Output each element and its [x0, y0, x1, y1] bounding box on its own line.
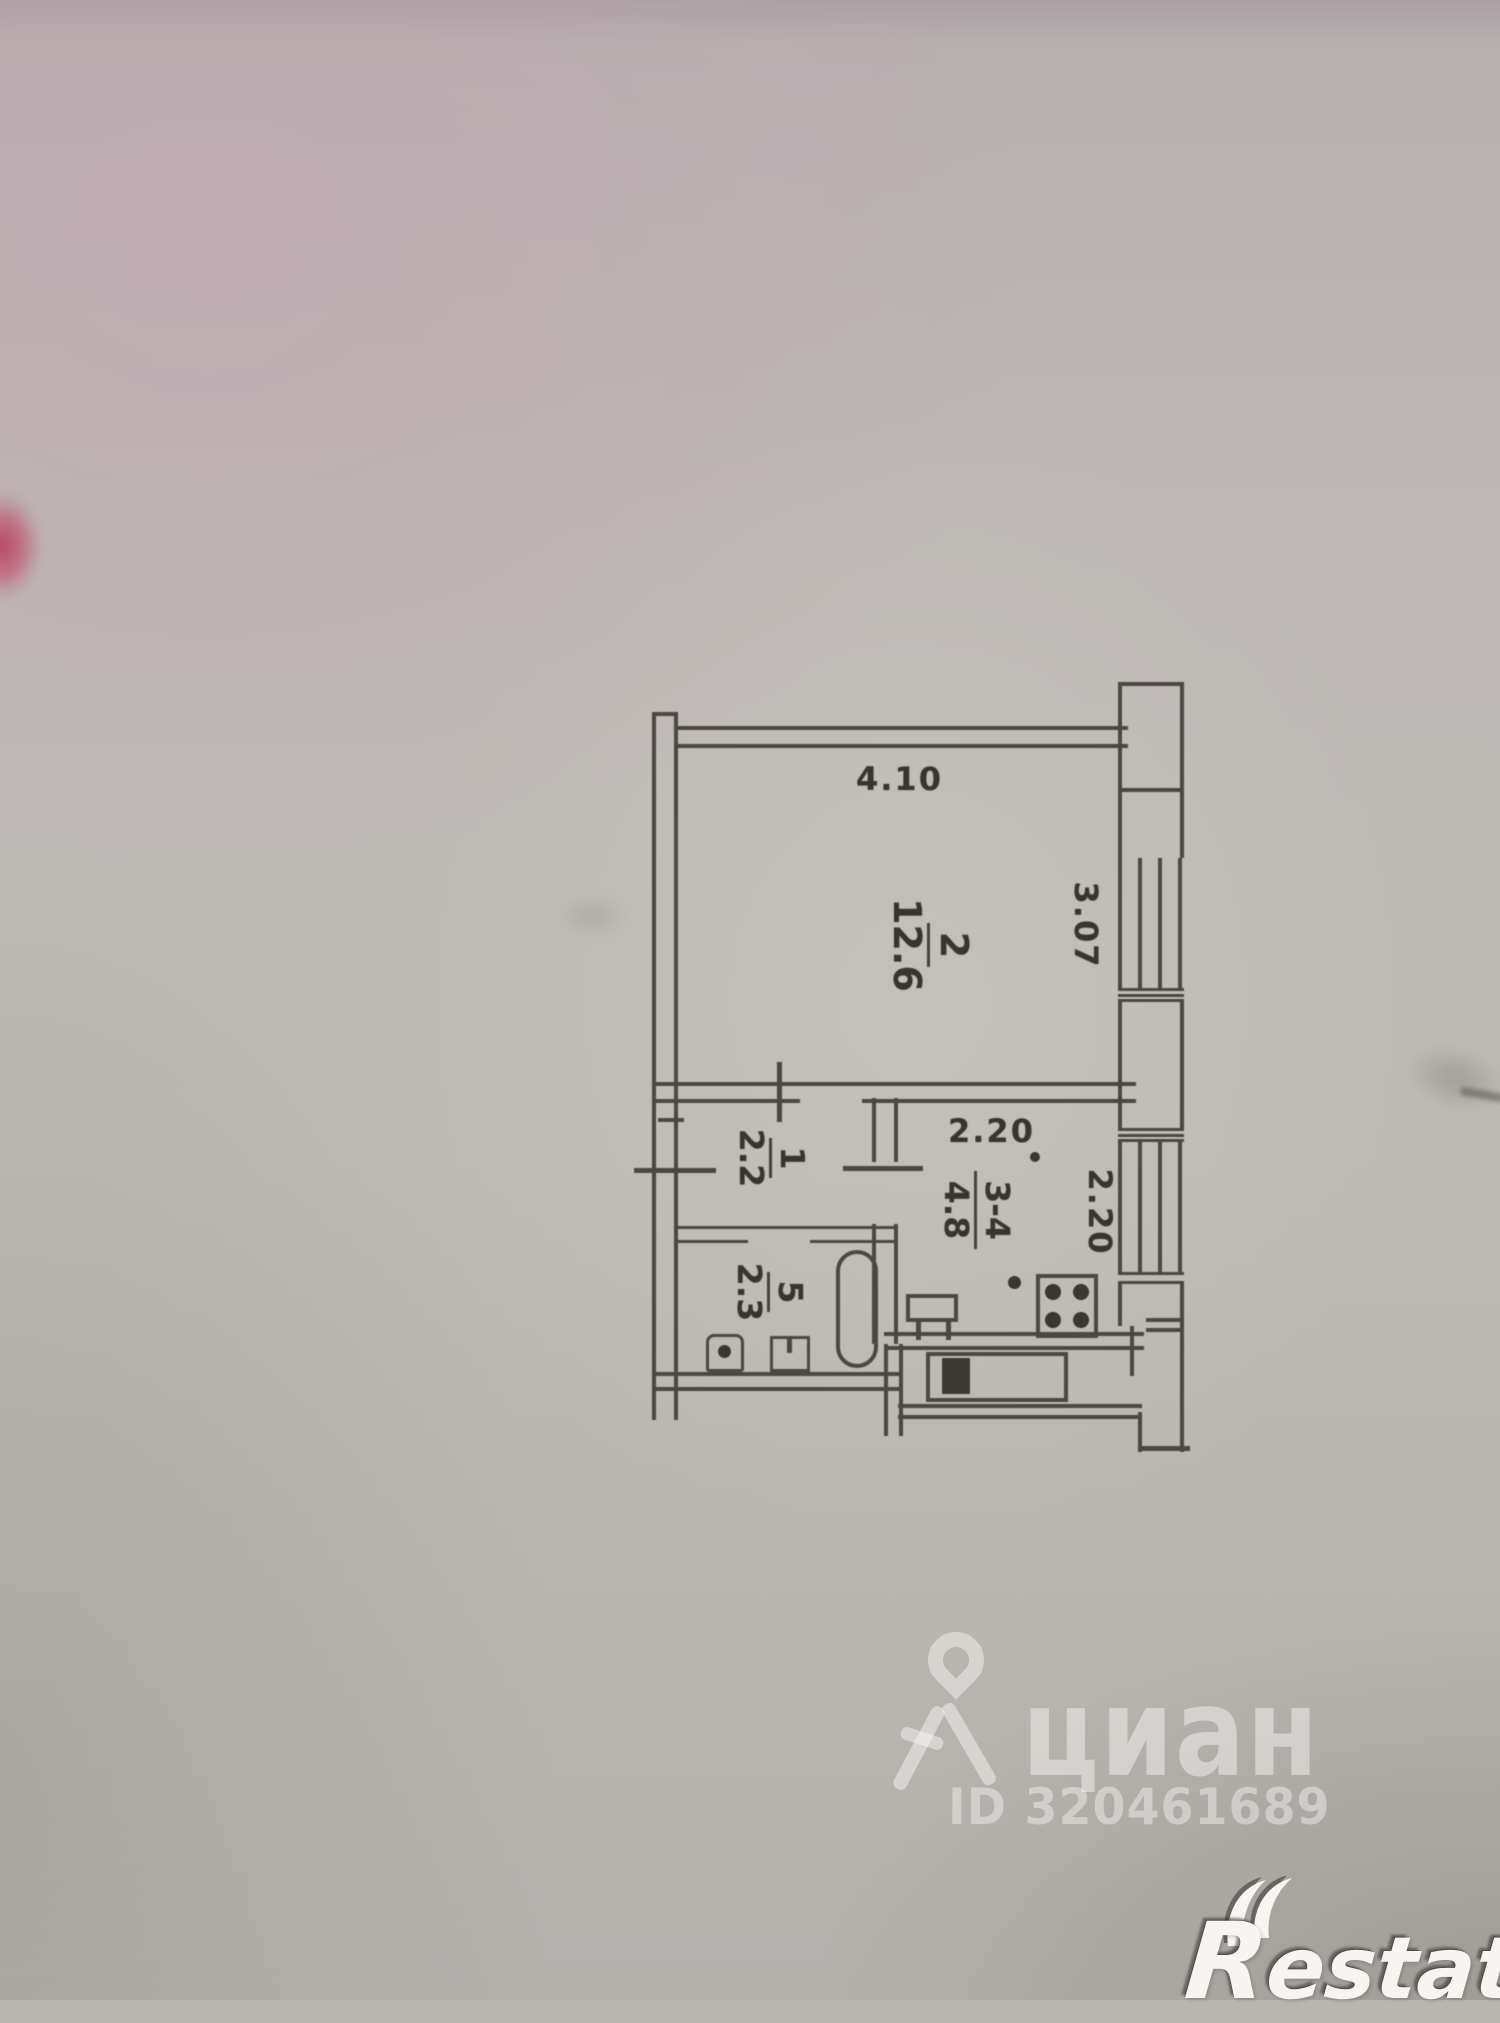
wall-right-strip — [1118, 682, 1184, 1452]
wall-top — [676, 726, 1128, 748]
wall-right-outer-lower — [1118, 1326, 1184, 1452]
restate-logo-initial: R — [1181, 1900, 1273, 2023]
stairs-hatch-symbol — [926, 1352, 1068, 1402]
restate-logo-text: Restate — [1181, 1900, 1500, 2023]
room-bathroom-number: 5 — [768, 1272, 809, 1313]
wall-hall-kitchen-upper — [872, 1098, 898, 1162]
restate-watermark: Restate — [1186, 1872, 1500, 2002]
wall-hall-bath-right — [810, 1226, 898, 1243]
dimension-tick-left — [634, 1168, 716, 1173]
wall-left — [652, 726, 678, 1420]
wall-kitchen-bottom — [884, 1332, 1144, 1350]
cian-watermark: циан ID 320461689 — [870, 1620, 1390, 1900]
room-hallway-number: 1 — [770, 1138, 811, 1179]
room-living-label: 2 12.6 — [870, 865, 990, 1025]
window-upper — [1118, 858, 1184, 988]
room-hallway-area: 2.2 — [734, 1129, 770, 1187]
room-kitchen-label: 3-4 4.8 — [925, 1130, 1029, 1290]
wall-living-divider-right — [862, 1082, 1136, 1103]
dimension-top-label: 4.10 — [856, 760, 943, 798]
cian-listing-id: ID 320461689 — [948, 1778, 1330, 1836]
dimension-tick-small — [658, 1118, 684, 1122]
cian-pin-icon — [900, 1620, 1030, 1790]
room-kitchen-number: 3-4 — [975, 1171, 1016, 1249]
wall-right-blank-2 — [1118, 1002, 1184, 1128]
window-sill-1 — [1118, 988, 1184, 1002]
wall-stair-left — [884, 1344, 903, 1436]
room-bathroom-area: 2.3 — [732, 1263, 768, 1321]
dimension-right-label: 3.07 — [1056, 845, 1116, 1005]
wall-right-blank-1 — [1118, 792, 1184, 858]
restate-logo-suffix: estate — [1263, 1919, 1500, 2019]
room-bathroom-label: 5 2.3 — [718, 1212, 822, 1372]
shaft-block — [1118, 682, 1184, 792]
cian-pin-leg-right — [940, 1701, 998, 1788]
cian-pin-head — [916, 1620, 995, 1699]
kitchen-sink-symbol — [906, 1294, 958, 1322]
room-living-area: 12.6 — [886, 898, 927, 992]
dimension-tick-mid — [843, 1166, 923, 1171]
dimension-right-value: 3.07 — [1069, 882, 1104, 969]
wall-stair-bottom — [898, 1404, 1142, 1419]
kitchen-dimension-right-value: 2.20 — [1083, 1169, 1118, 1256]
bathtub-symbol — [836, 1250, 878, 1368]
wall-right-inner-stub — [1130, 1326, 1134, 1376]
kitchen-sink-leg-left — [916, 1322, 921, 1340]
wall-bath-bottom — [652, 1372, 902, 1391]
room-kitchen-area: 4.8 — [939, 1181, 975, 1239]
kitchen-sink-leg-right — [946, 1322, 951, 1340]
kitchen-dimension-right-label: 2.20 — [1070, 1132, 1130, 1292]
stairs-dark-mark — [942, 1358, 970, 1394]
photo-of-floor-plan: { "floor_plan": { "dimensions": { "top":… — [0, 0, 1500, 2000]
room-living-number: 2 — [928, 923, 974, 967]
kitchen-dot-small — [1030, 1152, 1040, 1162]
